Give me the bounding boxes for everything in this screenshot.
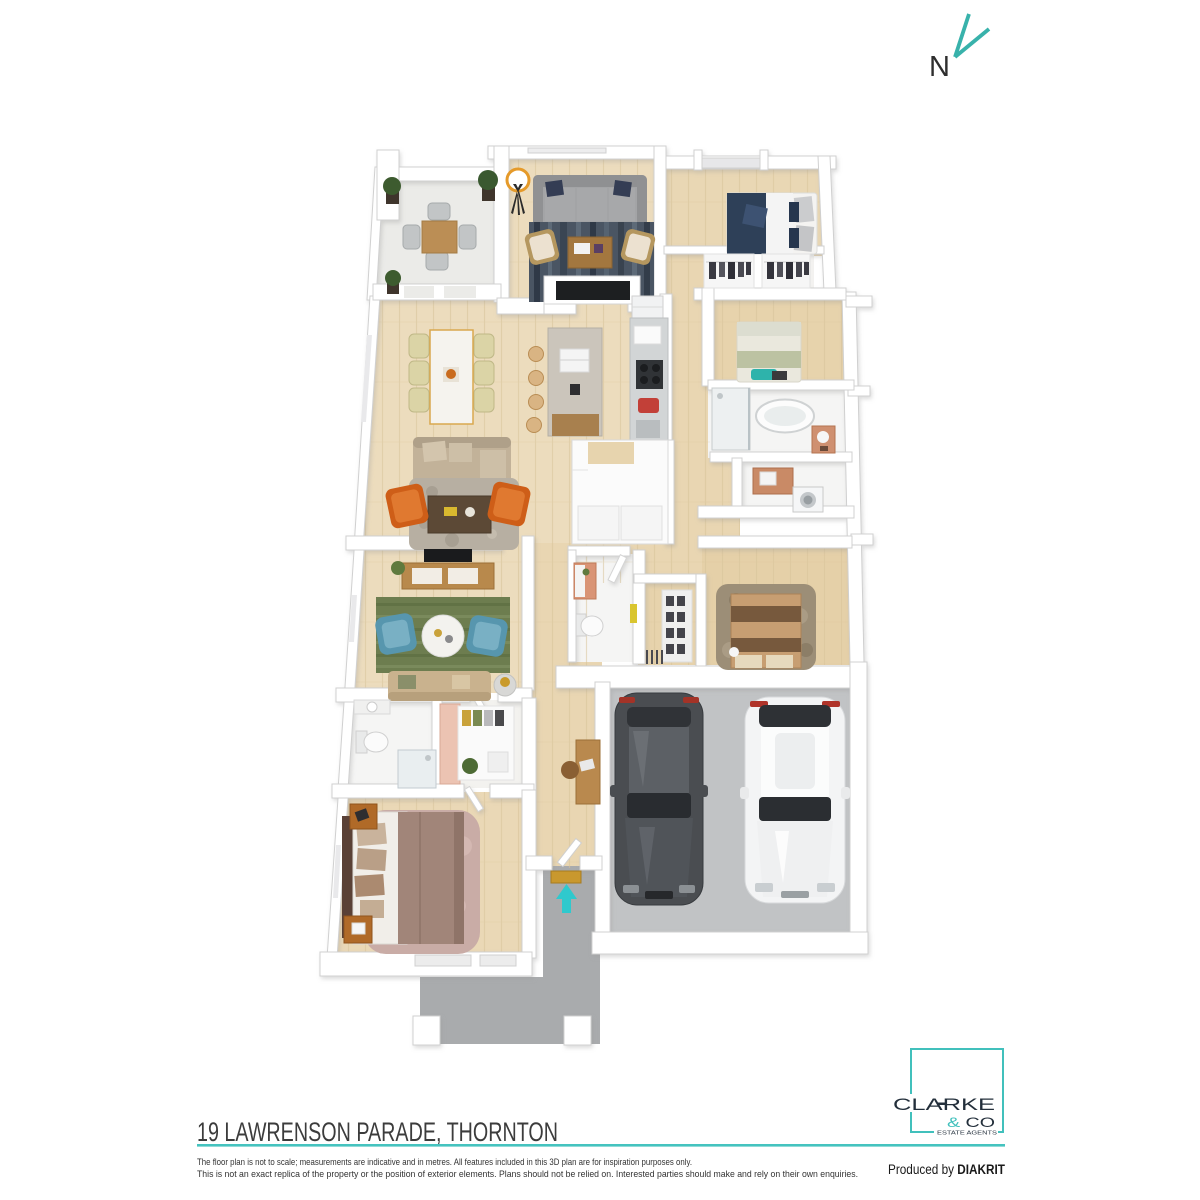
svg-text:Produced by DIAKRIT: Produced by DIAKRIT	[888, 1162, 1006, 1177]
svg-text:This is not an exact replica o: This is not an exact replica of the prop…	[197, 1169, 858, 1180]
svg-text:& CO: & CO	[947, 1115, 995, 1130]
svg-text:N: N	[929, 51, 950, 83]
svg-text:19 LAWRENSON PARADE, THORNTON: 19 LAWRENSON PARADE, THORNTON	[197, 1117, 558, 1147]
svg-text:ESTATE AGENTS: ESTATE AGENTS	[937, 1131, 997, 1137]
svg-text:The floor plan is not to scale: The floor plan is not to scale; measurem…	[197, 1157, 692, 1168]
